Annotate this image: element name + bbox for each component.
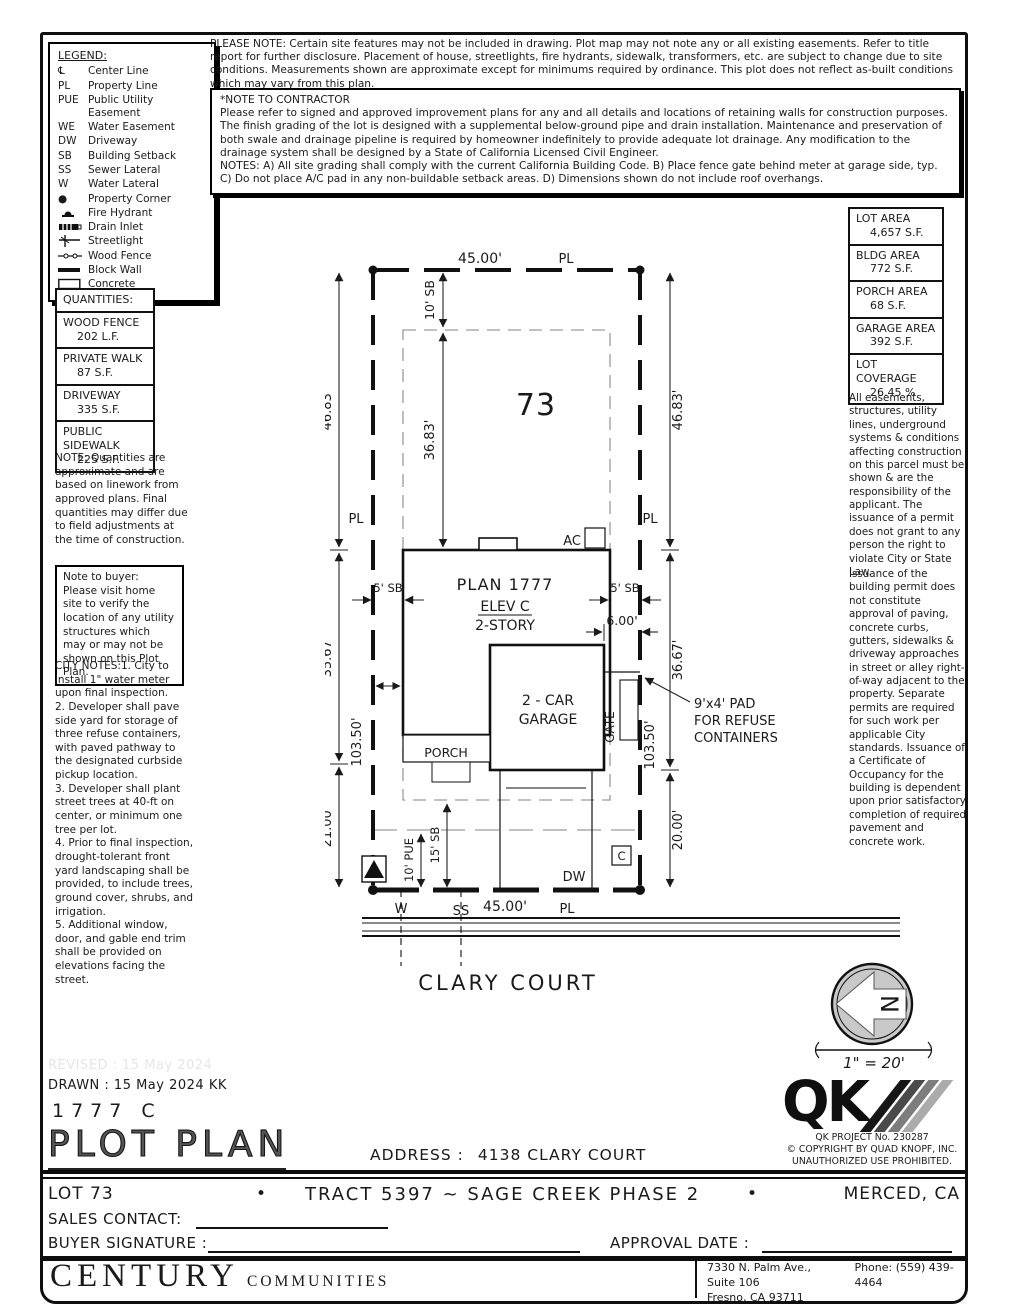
pue-symbol: PUE [58,94,88,107]
city-label: MERCED, CA [830,1184,960,1204]
plan-story-label: 2-STORY [475,618,535,634]
sales-contact-field [196,1227,388,1229]
utility-c-label: C [617,849,625,863]
builder-address: 7330 N. Palm Ave., Suite 106 [707,1261,838,1291]
legend-item-building-setback: SB Building Setback [58,150,208,163]
table-row: PRIVATE WALK87 S.F. [55,347,155,386]
dim-label: 6.00' [606,613,637,628]
dim-label: 5' SB [610,581,639,595]
gate-label: GATE [603,711,617,743]
we-symbol: WE [58,121,88,134]
property-line-symbol: PL [58,80,88,93]
contractor-note-title: *NOTE TO CONTRACTOR [220,94,951,107]
address-value: 4138 CLARY COURT [478,1146,646,1164]
pl-label: PL [348,512,364,527]
buyer-signature-field [208,1251,580,1253]
plan-elev-label: ELEV C [480,599,530,615]
lot-number: 73 [516,388,556,423]
porch-step [432,762,470,782]
quantities-table: QUANTITIES: WOOD FENCE202 L.F. PRIVATE W… [55,288,155,473]
north-arrow: N 1" = 20' [805,958,945,1070]
dim-label: 46.83' [325,390,335,431]
property-corner-dot [635,885,645,895]
table-row: WOOD FENCE202 L.F. [55,311,155,350]
plan-code: 1777 C [52,1100,162,1122]
bullet-separator: • [747,1184,758,1204]
legend-title: LEGEND: [58,49,208,62]
quantities-note: NOTE: Quantities are approximate and are… [55,452,189,547]
dim-label: 36.83' [423,420,438,461]
qk-logo-text: QK [782,1070,867,1135]
builder-logo: CENTURY COMMUNITIES [50,1258,389,1295]
city-notes: CITY NOTES:1. City to install 1" water m… [55,660,195,987]
property-corner-dot [636,266,645,275]
refuse-callout: FOR REFUSE [694,714,776,729]
refuse-pad [620,680,638,740]
ac-pad [585,528,605,548]
legend-item-water-easement: WE Water Easement [58,121,208,134]
legend-item-drain-inlet: Drain Inlet [58,221,208,234]
dim-label: 46.83' [671,390,686,431]
dw-symbol: DW [58,135,88,148]
streetlight-icon [58,235,82,247]
bullet-separator: • [256,1184,267,1204]
builder-suffix: COMMUNITIES [247,1273,389,1291]
approval-date-label: APPROVAL DATE : [610,1234,749,1252]
w-symbol: W [58,178,88,191]
legend-item-property-line: PL Property Line [58,80,208,93]
legend-item-block-wall: Block Wall [58,264,208,277]
divider-line [43,1170,965,1174]
legend-item-fire-hydrant: Fire Hydrant [58,207,208,220]
block-wall-icon [58,264,82,276]
builder-name: CENTURY [50,1258,239,1295]
dim-label: 10' SB [422,280,437,320]
centerline-symbol: ℄ [58,65,88,78]
contractor-note-line3: NOTES: A) All site grading shall comply … [220,160,951,186]
builder-contact: 7330 N. Palm Ave., Suite 106 Phone: (559… [707,1261,959,1306]
legend-item-center-line: ℄ Center Line [58,65,208,78]
street-name: CLARY COURT [418,971,597,995]
pl-label: PL [558,252,574,267]
dim-label: 5' SB [373,581,402,595]
address-label: ADDRESS : [370,1146,464,1164]
wood-fence-icon [58,250,82,262]
sheet-title: PLOT PLAN [48,1124,289,1165]
legend-item-pue: PUE Public Utility Easement [58,94,208,120]
pl-label: PL [559,902,575,917]
property-corner-dot [368,885,378,895]
dim-label: 45.00' [458,251,502,267]
ac-label: AC [563,534,581,549]
drain-inlet-icon [58,221,82,233]
please-note-text: PLEASE NOTE: Certain site features may n… [210,38,958,91]
north-letter: N [875,995,903,1013]
legend-item-sewer-lateral: SS Sewer Lateral [58,164,208,177]
dim-label: 36.67' [671,640,686,681]
legend-item-property-corner: ● Property Corner [58,193,208,206]
drawn-date: DRAWN : 15 May 2024 KK [48,1078,227,1093]
divider-vertical [695,1261,697,1298]
house-bay [479,538,517,550]
table-row: LOT AREA4,657 S.F. [848,207,944,246]
builder-phone: Phone: (559) 439-4464 [854,1261,959,1291]
contractor-note-line1: Please refer to signed and approved impr… [220,107,951,120]
dim-label: 20.00' [671,810,686,851]
sales-contact-label: SALES CONTACT: [48,1210,182,1228]
dim-label: 21.00' [325,807,335,848]
revised-date: REVISED : 15 May 2024 [48,1058,212,1073]
lot-label: LOT 73 [48,1184,114,1204]
legend-item-wood-fence: Wood Fence [58,250,208,263]
legend-item-water-lateral: W Water Lateral [58,178,208,191]
plot-plan-sheet: LEGEND: ℄ Center Line PL Property Line P… [0,0,1009,1309]
note-to-contractor-box: *NOTE TO CONTRACTOR Please refer to sign… [210,88,961,195]
property-corner-icon: ● [58,193,88,206]
fire-hydrant-icon [58,207,80,219]
qk-copyright: © COPYRIGHT BY QUAD KNOPF, INC. [782,1144,962,1156]
refuse-leader [645,678,690,702]
dw-label: DW [563,870,586,885]
ss-label: SS [453,904,470,919]
dim-label: 45.00' [483,899,527,915]
quantities-title: QUANTITIES: [55,288,155,313]
porch-label: PORCH [424,745,468,760]
qk-unauthorized: UNAUTHORIZED USE PROHIBITED. [782,1156,962,1168]
scale-label: 1" = 20' [843,1054,905,1070]
property-corner-dot [369,266,378,275]
pl-label: PL [642,512,658,527]
buyer-signature-label: BUYER SIGNATURE : [48,1234,207,1252]
table-row: DRIVEWAY335 S.F. [55,384,155,423]
qk-logo: QK QK PROJECT No. 230287 © COPYRIGHT BY … [782,1076,962,1168]
tract-label: TRACT 5397 ~ SAGE CREEK PHASE 2 [305,1184,700,1205]
legend-item-driveway: DW Driveway [58,135,208,148]
dim-label: 103.50' [350,717,365,766]
dim-label: 15' SB [428,827,442,864]
dim-label: 103.50' [643,720,658,769]
refuse-callout: 9'x4' PAD [694,697,755,712]
garage-label: 2 - CAR [522,693,574,709]
refuse-callout: CONTAINERS [694,731,778,746]
garage-label: GARAGE [519,712,578,728]
dim-label: 35.67' [325,637,335,678]
w-label: W [395,902,408,917]
legend-item-streetlight: Streetlight [58,235,208,248]
address-line: ADDRESS : 4138 CLARY COURT [370,1146,646,1164]
builder-city: Fresno, CA 93711 [707,1291,959,1306]
approval-date-field [762,1251,952,1253]
dim-label: 10' PUE [402,838,416,882]
city-notes-title: CITY NOTES: [55,660,121,672]
plot-drawing: C 73 45.0 [325,248,910,1008]
plan-name-label: PLAN 1777 [457,575,554,594]
divider-line [43,1177,965,1179]
contractor-note-line2: The finish grading of the lot is designe… [220,120,951,160]
ss-symbol: SS [58,164,88,177]
sb-symbol: SB [58,150,88,163]
legend-box: LEGEND: ℄ Center Line PL Property Line P… [48,42,216,302]
